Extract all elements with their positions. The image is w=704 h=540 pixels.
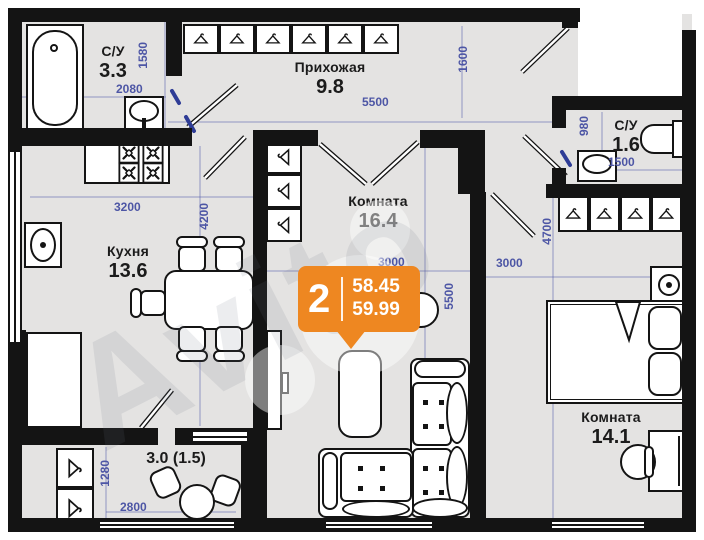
room-name: Комната	[330, 194, 426, 210]
room-area: 3.3	[84, 60, 142, 82]
wall	[8, 128, 192, 146]
dimension-4200: 4200	[197, 203, 211, 230]
wall	[552, 96, 566, 128]
bed-blanket-fold	[616, 302, 640, 340]
room-name: Кухня	[90, 244, 166, 260]
wall	[470, 192, 486, 518]
dimension-3000-bedroom: 3000	[496, 256, 523, 270]
room-label-bedroom: Комната 14.1	[562, 410, 660, 448]
window	[552, 520, 644, 530]
room-label-bath1: С/У 3.3	[84, 44, 142, 82]
wall	[458, 130, 485, 194]
dimension-5500-living: 5500	[442, 283, 456, 310]
room-area: 14.1	[562, 426, 660, 448]
wall	[241, 428, 255, 532]
dimension-4700: 4700	[540, 218, 554, 245]
room-label-bath2: С/У 1.6	[600, 118, 652, 156]
room-label-hallway: Прихожая 9.8	[280, 60, 380, 98]
room-name: Прихожая	[280, 60, 380, 76]
dimension-2800: 2800	[120, 500, 147, 514]
wall	[562, 8, 578, 28]
dimension-1600: 1600	[456, 46, 470, 73]
dimension-3200: 3200	[114, 200, 141, 214]
room-label-kitchen: Кухня 13.6	[90, 244, 166, 282]
room-name: С/У	[600, 118, 652, 134]
room-area: 3.0 (1.5)	[146, 450, 206, 467]
rooms-count: 2	[308, 279, 330, 319]
room-area: 16.4	[330, 210, 426, 232]
wall	[682, 30, 696, 96]
wall	[166, 22, 182, 76]
dimension-1500: 1500	[608, 155, 635, 169]
wall	[546, 184, 696, 198]
room-label-living: Комната 16.4	[330, 194, 426, 232]
dimension-2080: 2080	[116, 82, 143, 96]
dimension-5500-hall: 5500	[362, 95, 389, 109]
area-with-balcony: 59.99	[352, 299, 400, 322]
floor-plan: С/У 3.3 Прихожая 9.8 С/У 1.6 Кухня 13.6 …	[0, 0, 704, 540]
total-area: 58.45	[352, 276, 400, 299]
wall	[8, 8, 580, 22]
room-area: 13.6	[90, 260, 166, 282]
dimension-1280: 1280	[98, 460, 112, 487]
wall	[253, 130, 267, 518]
dimension-980: 980	[577, 116, 591, 136]
wall	[8, 428, 158, 445]
room-name: С/У	[84, 44, 142, 60]
dimension-1580: 1580	[136, 42, 150, 69]
apartment-info-badge: 2 58.45 59.99	[298, 266, 420, 332]
window	[326, 520, 432, 530]
room-area: 1.6	[600, 134, 652, 156]
window	[8, 152, 22, 342]
window	[100, 520, 234, 530]
wall	[552, 168, 566, 198]
badge-divider	[341, 277, 343, 321]
window	[193, 430, 247, 443]
wall	[560, 96, 696, 110]
wall	[682, 96, 696, 532]
room-name: Комната	[562, 410, 660, 426]
room-label-balcony: 3.0 (1.5)	[128, 450, 224, 468]
